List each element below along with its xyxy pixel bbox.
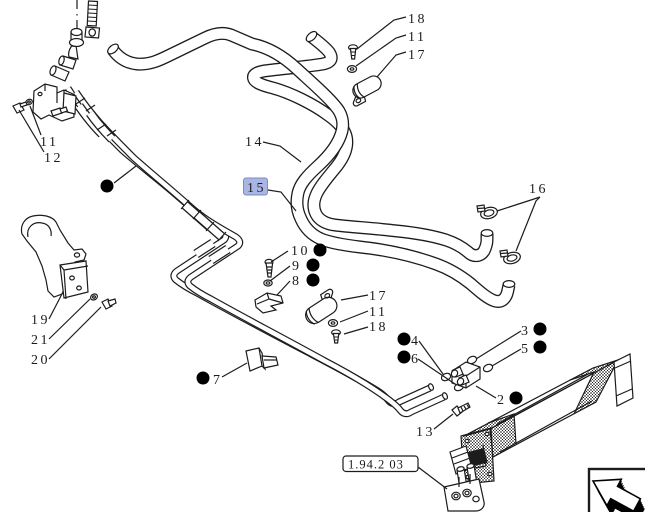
svg-text:11: 11 [369,305,387,320]
svg-text:16: 16 [529,182,548,197]
svg-text:9: 9 [292,259,302,274]
svg-text:8: 8 [292,274,302,289]
svg-text:11: 11 [40,135,58,150]
svg-text:10: 10 [291,244,310,259]
svg-text:6: 6 [411,352,421,367]
svg-text:5: 5 [521,342,531,357]
svg-text:20: 20 [31,353,50,368]
svg-text:14: 14 [245,135,264,150]
svg-text:18: 18 [369,320,388,335]
svg-text:19: 19 [31,313,50,328]
svg-text:3: 3 [521,324,531,339]
svg-text:15: 15 [247,181,266,196]
svg-text:4: 4 [411,334,421,349]
svg-text:7: 7 [213,373,223,388]
svg-text:12: 12 [44,151,63,166]
svg-text:21: 21 [31,333,50,348]
svg-text:13: 13 [416,425,435,440]
svg-text:1.94.2 03: 1.94.2 03 [348,458,404,472]
svg-text:2: 2 [497,393,507,408]
svg-text:17: 17 [408,48,427,63]
svg-text:17: 17 [369,289,388,304]
svg-text:18: 18 [408,12,427,27]
svg-text:11: 11 [408,30,426,45]
